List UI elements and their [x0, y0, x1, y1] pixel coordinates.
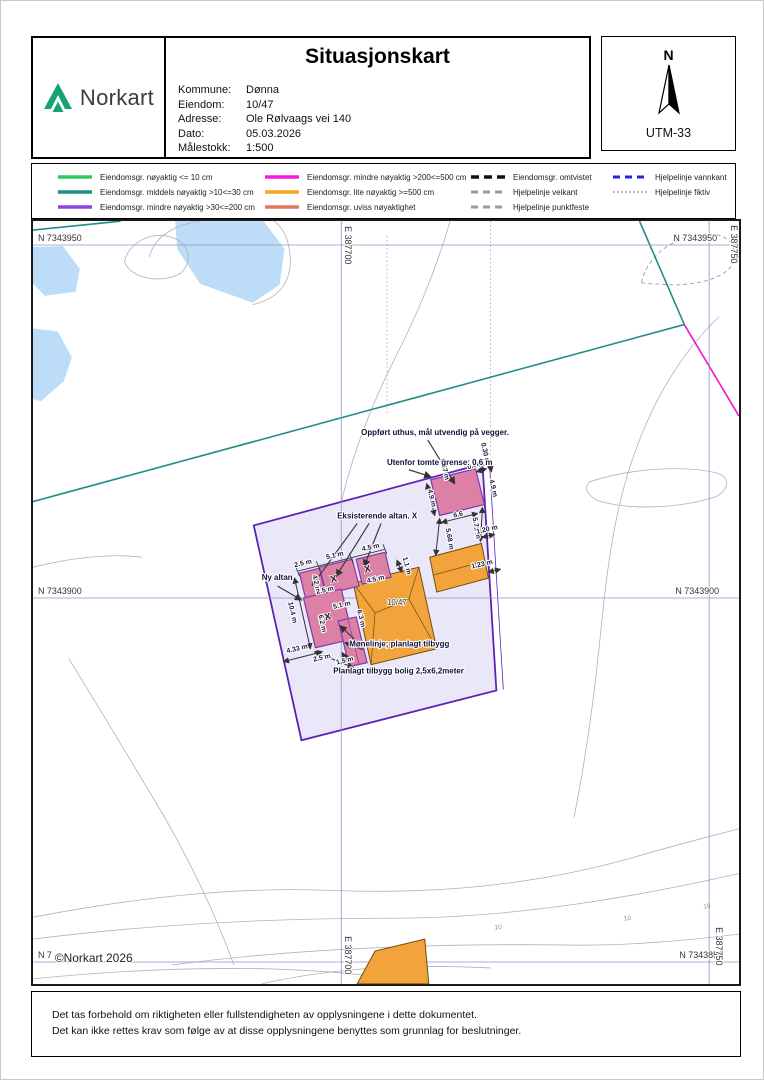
info-label: Målestokk:: [178, 141, 246, 156]
legend-swatch-solid: [57, 203, 93, 211]
grid-label-n: N 7343950: [673, 233, 717, 243]
info-row-malestokk: Målestokk: 1:500: [178, 141, 589, 156]
boundary-teal: [33, 325, 684, 502]
legend-swatch-dashed: [470, 188, 506, 196]
legend-label: Eiendomsgr. uviss nøyaktighet: [307, 203, 416, 212]
legend-label: Hjelpelinje vannkant: [655, 173, 727, 182]
annotation-eksisterende-altan: Eksisterende altan. X: [337, 511, 418, 520]
annotation-planlagt-tilbygg: Planlagt tilbygg bolig 2,5x6,2meter: [333, 667, 464, 676]
annotation-monelinje: Mønelinje; planlagt tilbygg: [349, 640, 449, 649]
legend-label: Hjelpelinje veikant: [513, 188, 577, 197]
grid-label-e: E 387750: [729, 225, 739, 263]
boundary-magenta: [684, 325, 739, 416]
legend-label: Eiendomsgr. omtvistet: [513, 173, 592, 182]
legend-swatch-solid: [264, 173, 300, 181]
map-svg: X X X 2.5 m 5.1 m 4.5 m 1.1 m 4.5 m 4.2 …: [33, 221, 739, 984]
legend-swatch-solid: [264, 188, 300, 196]
legend-item: Hjelpelinje fiktiv: [612, 187, 710, 197]
building-south: [357, 939, 429, 984]
legend-label: Eiendomsgr. lite nøyaktig >=500 cm: [307, 188, 434, 197]
grid-label-n-partial: N 7: [38, 950, 52, 960]
info-row-adresse: Adresse: Ole Rølvaags vei 140: [178, 112, 589, 127]
info-value: 1:500: [246, 141, 274, 156]
info-row-eiendom: Eiendom: 10/47: [178, 98, 589, 113]
situasjonskart-page: Norkart Situasjonskart Kommune: Dønna Ei…: [0, 0, 764, 1080]
copyright-label: ©Norkart 2026: [55, 951, 133, 965]
north-arrow-white-half: [659, 65, 669, 113]
north-arrow-box: N UTM-33: [601, 36, 736, 151]
legend-item: Eiendomsgr. omtvistet: [470, 172, 592, 182]
boundary-teal: [33, 221, 121, 230]
lake: [175, 221, 284, 303]
legend-item: Eiendomsgr. mindre nøyaktig >200<=500 cm: [264, 172, 466, 182]
helper-lines: [387, 221, 735, 458]
legend-swatch-dashed: [470, 203, 506, 211]
legend-swatch-dashed: [470, 173, 506, 181]
legend-swatch-solid: [57, 173, 93, 181]
legend-swatch-solid: [264, 203, 300, 211]
info-label: Eiendom:: [178, 98, 246, 113]
info-row-dato: Dato: 05.03.2026: [178, 127, 589, 142]
annotation-ny-altan: Ny altan: [262, 573, 293, 582]
legend-item: Eiendomsgr. mindre nøyaktig >30<=200 cm: [57, 202, 255, 212]
grid-label-n: N 7343950: [38, 233, 82, 243]
legend-item: Hjelpelinje punktfeste: [470, 202, 589, 212]
legend-label: Hjelpelinje punktfeste: [513, 203, 589, 212]
info-value: 05.03.2026: [246, 127, 301, 142]
legend-label: Eiendomsgr. mindre nøyaktig >200<=500 cm: [307, 173, 466, 182]
water-bodies: [33, 221, 285, 401]
boundary-lines: [33, 221, 739, 501]
disclaimer: Det tas forbehold om riktigheten eller f…: [31, 991, 741, 1057]
annotation-uthus: Oppført uthus, mål utvendig på vegger.: [361, 428, 509, 437]
info-value: 10/47: [246, 98, 274, 113]
projection-label: UTM-33: [602, 126, 735, 140]
parcel-number-label: 10/47: [387, 598, 407, 607]
page-title: Situasjonskart: [305, 45, 450, 69]
grid-label-e: E 387700: [343, 936, 353, 974]
legend-item: Hjelpelinje veikant: [470, 187, 577, 197]
elevation-label: 10: [494, 924, 502, 932]
disclaimer-line-2: Det kan ikke rettes krav som følge av at…: [52, 1023, 740, 1039]
info-row-kommune: Kommune: Dønna: [178, 83, 589, 98]
legend-label: Eiendomsgr. mindre nøyaktig >30<=200 cm: [100, 203, 255, 212]
pond: [33, 246, 80, 296]
info-label: Adresse:: [178, 112, 246, 127]
legend-item: Hjelpelinje vannkant: [612, 172, 727, 182]
legend-label: Eiendomsgr. nøyaktig <= 10 cm: [100, 173, 213, 182]
norkart-logo-icon: [43, 82, 73, 113]
annotation-utenfor-grense: Utenfor tomte grense: 0,6 m: [387, 458, 492, 467]
north-letter: N: [602, 47, 735, 63]
grid-label-e: E 387750: [714, 927, 724, 965]
legend-item: Eiendomsgr. middels nøyaktig >10<=30 cm: [57, 187, 254, 197]
legend-swatch-solid: [57, 188, 93, 196]
info-value: Dønna: [246, 83, 279, 98]
logo-box: Norkart: [31, 36, 166, 159]
legend: Eiendomsgr. nøyaktig <= 10 cm Eiendomsgr…: [31, 163, 736, 219]
north-arrow-black-half: [669, 65, 679, 113]
pond: [33, 329, 72, 402]
brand-name: Norkart: [80, 85, 154, 111]
info-value: Ole Rølvaags vei 140: [246, 112, 351, 127]
dimension-label: 4.9 m: [487, 479, 498, 498]
elevation-label: 10: [624, 915, 632, 923]
info-label: Dato:: [178, 127, 246, 142]
grid-label-n: N 7343900: [675, 586, 719, 596]
legend-label: Hjelpelinje fiktiv: [655, 188, 710, 197]
grid-label-e: E 387700: [343, 226, 353, 264]
map-area: X X X 2.5 m 5.1 m 4.5 m 1.1 m 4.5 m 4.2 …: [31, 219, 741, 986]
elevation-labels: 10 10 10: [494, 903, 711, 932]
legend-item: Eiendomsgr. lite nøyaktig >=500 cm: [264, 187, 434, 197]
north-arrow-icon: [651, 63, 687, 117]
legend-item: Eiendomsgr. uviss nøyaktighet: [264, 202, 416, 212]
title-box: Situasjonskart: [164, 36, 591, 78]
property-info-box: Kommune: Dønna Eiendom: 10/47 Adresse: O…: [164, 76, 591, 159]
disclaimer-line-1: Det tas forbehold om riktigheten eller f…: [52, 1007, 740, 1023]
grid-label-n: N 7343900: [38, 586, 82, 596]
elevation-label: 10: [703, 903, 711, 911]
legend-swatch-dashed: [612, 173, 648, 181]
info-label: Kommune:: [178, 83, 246, 98]
legend-label: Eiendomsgr. middels nøyaktig >10<=30 cm: [100, 188, 254, 197]
legend-item: Eiendomsgr. nøyaktig <= 10 cm: [57, 172, 213, 182]
legend-swatch-dotted: [612, 188, 648, 196]
